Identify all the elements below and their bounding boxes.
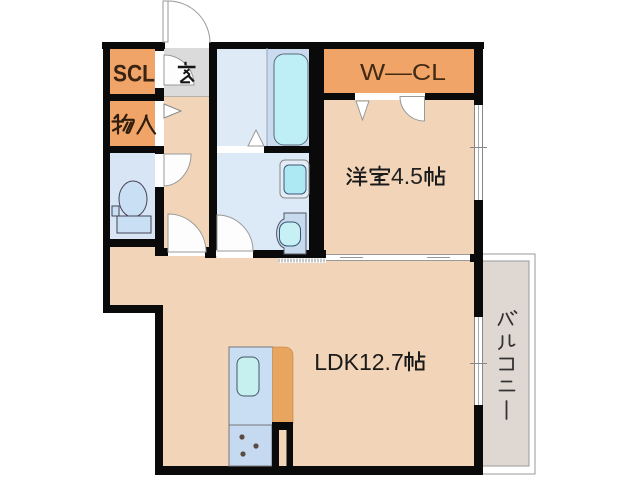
- svg-text:LDK12.7: LDK12.7: [314, 349, 404, 375]
- svg-text:SCL: SCL: [113, 61, 155, 88]
- svg-text:4.5: 4.5: [391, 163, 423, 189]
- svg-text:W—CL: W—CL: [360, 59, 446, 85]
